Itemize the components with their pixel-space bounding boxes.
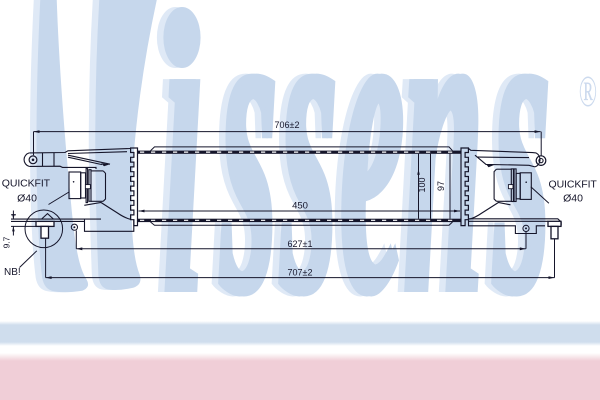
svg-text:97: 97 [436, 181, 446, 191]
svg-text:450: 450 [292, 201, 308, 212]
svg-text:100: 100 [417, 177, 427, 192]
svg-text:®: ® [579, 66, 597, 116]
svg-text:Ø40: Ø40 [17, 192, 37, 204]
svg-text:QUICKFIT: QUICKFIT [549, 179, 598, 191]
svg-text:Ø40: Ø40 [563, 192, 583, 204]
svg-text:627±1: 627±1 [288, 239, 313, 249]
svg-text:707±2: 707±2 [288, 268, 313, 278]
svg-text:706±2: 706±2 [275, 120, 300, 130]
svg-text:9.7: 9.7 [2, 236, 12, 248]
svg-text:NB!: NB! [4, 267, 21, 278]
svg-text:QUICKFIT: QUICKFIT [2, 178, 51, 190]
